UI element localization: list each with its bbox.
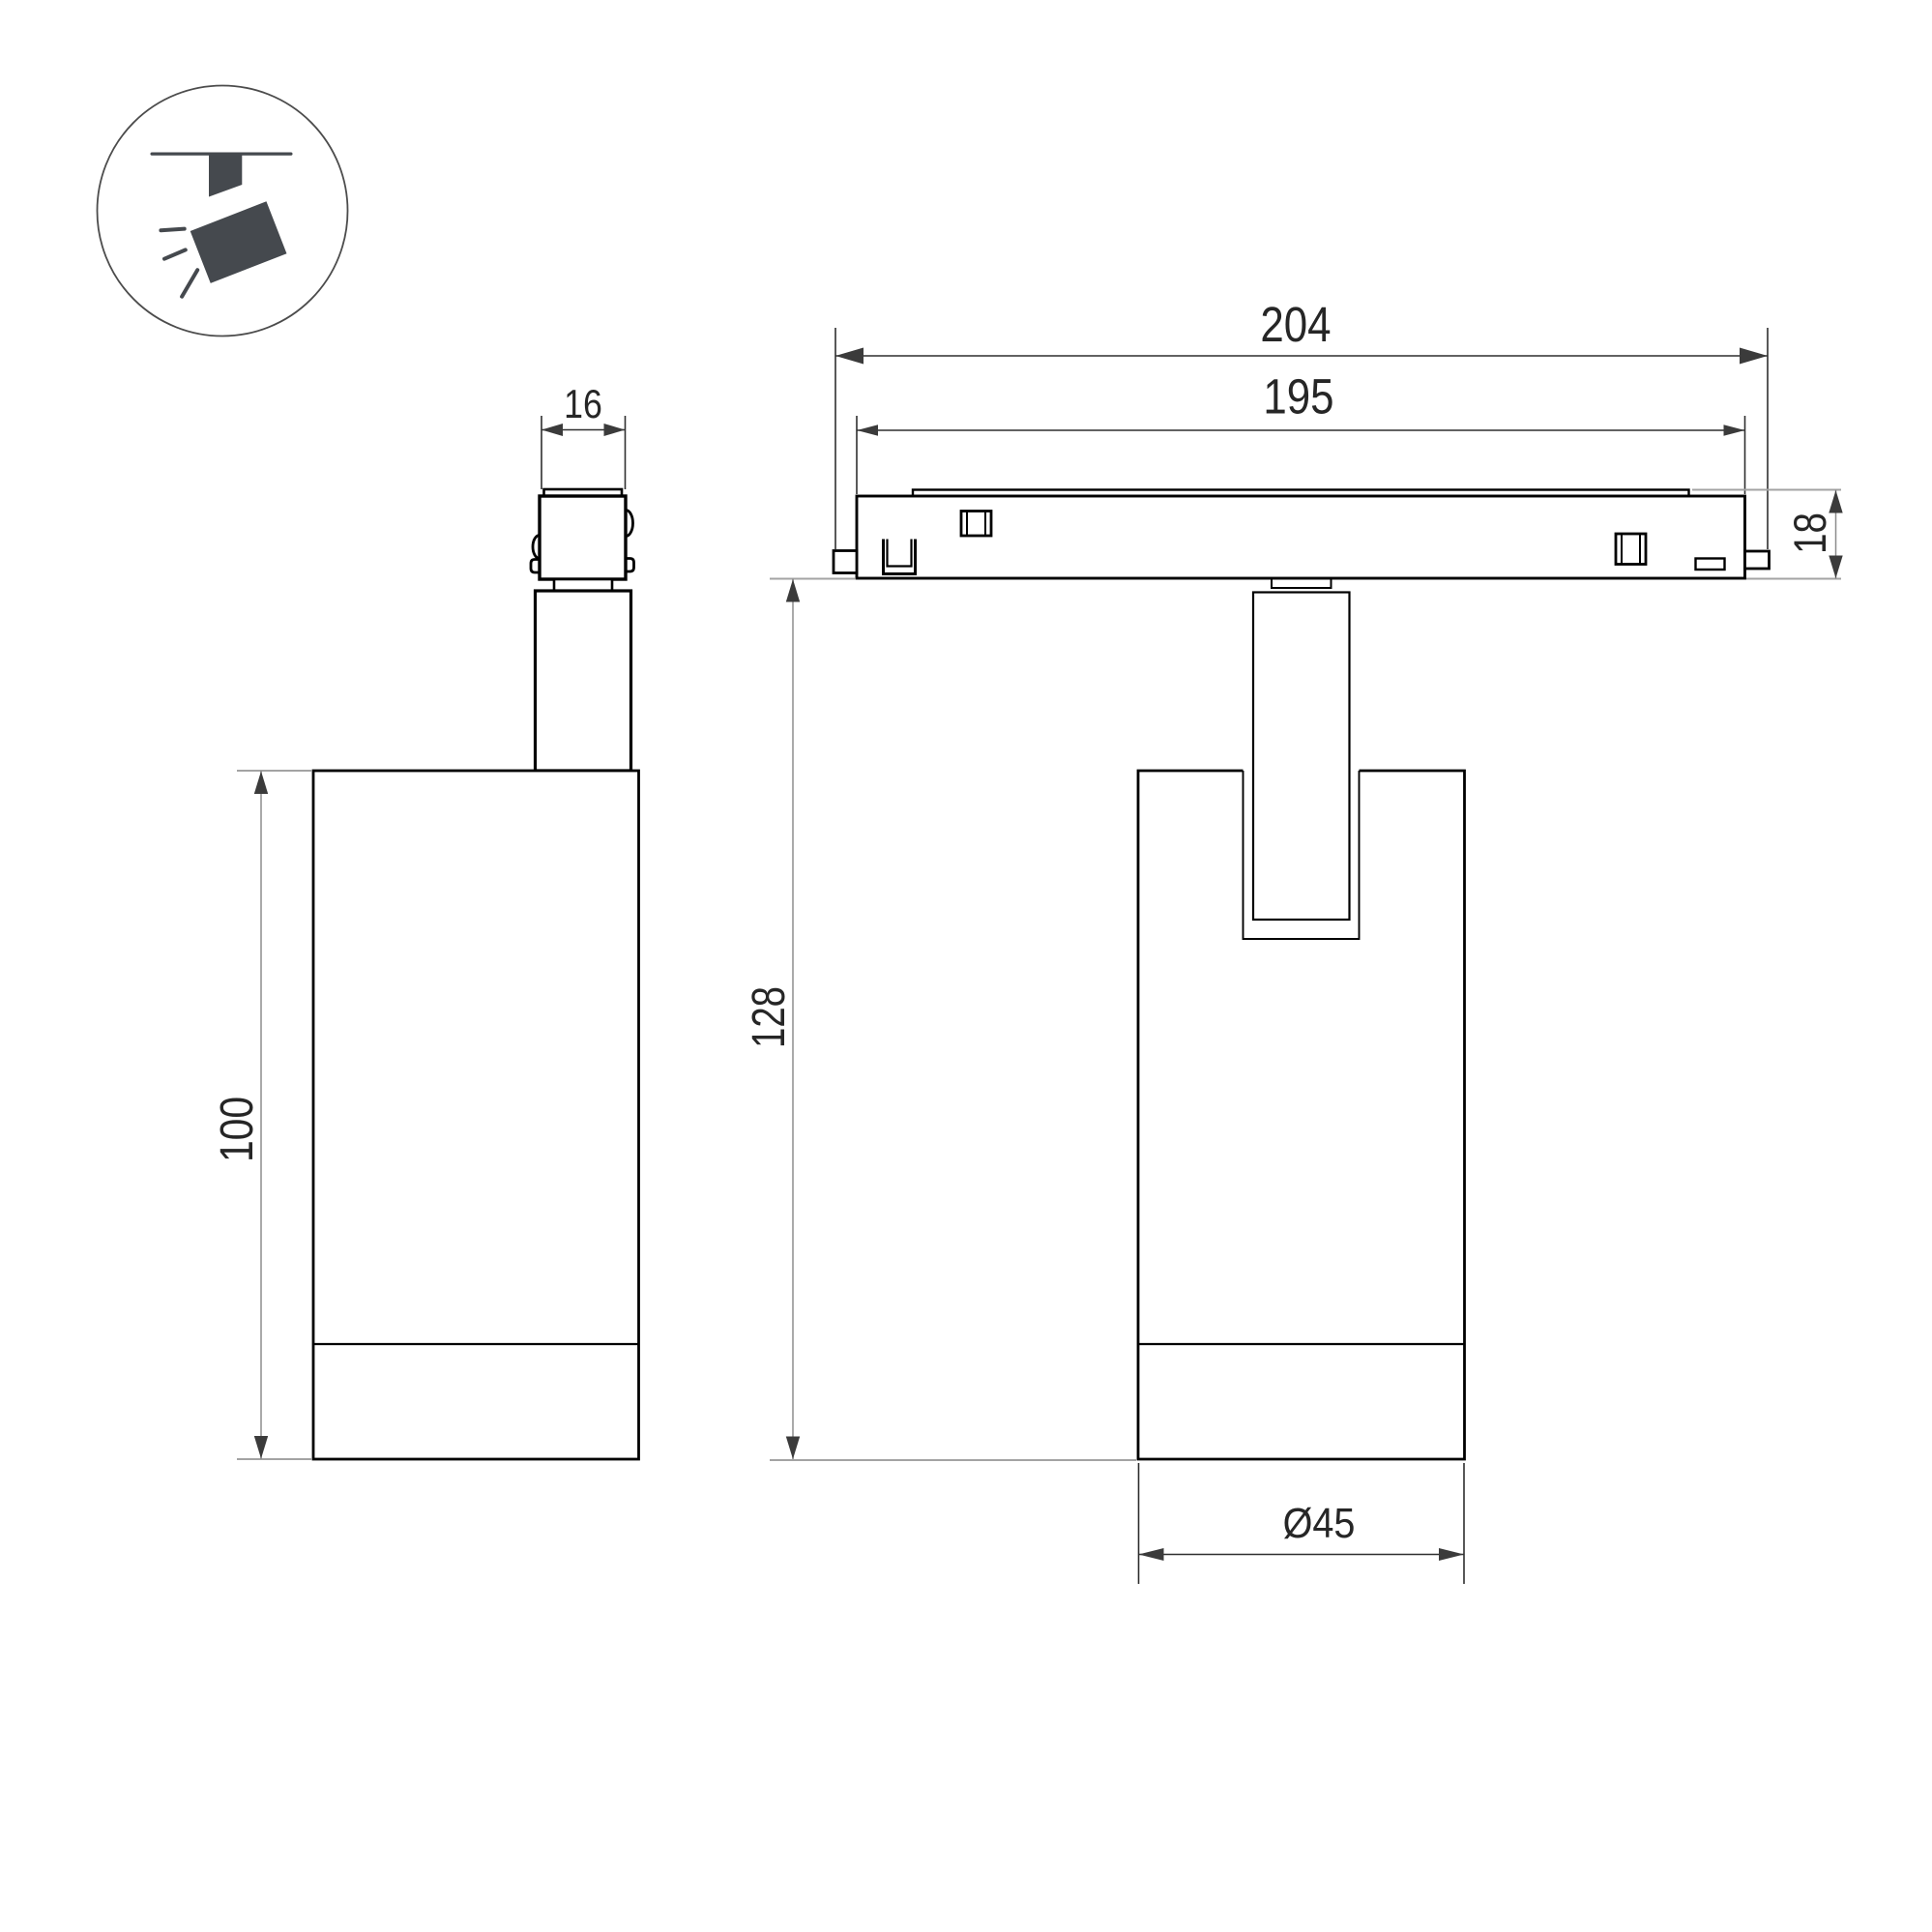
svg-text:16: 16 bbox=[564, 382, 602, 426]
svg-text:195: 195 bbox=[1263, 369, 1333, 424]
svg-text:204: 204 bbox=[1260, 298, 1331, 353]
svg-text:128: 128 bbox=[744, 986, 795, 1048]
svg-text:Ø45: Ø45 bbox=[1283, 1499, 1356, 1546]
svg-text:18: 18 bbox=[1785, 512, 1835, 554]
svg-text:100: 100 bbox=[212, 1097, 263, 1162]
